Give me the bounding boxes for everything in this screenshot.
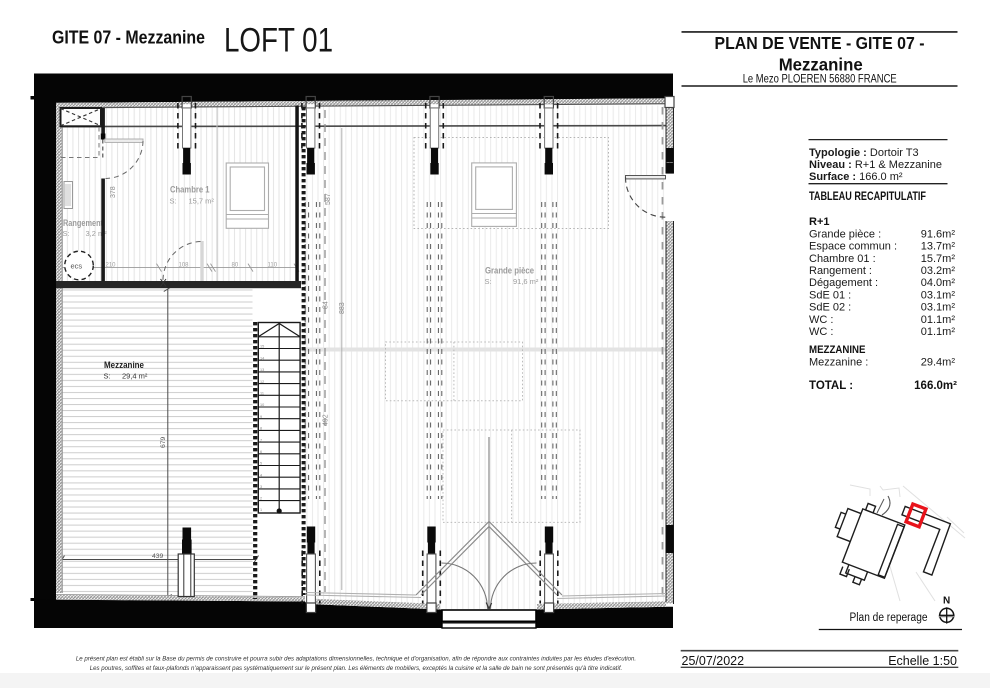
svg-text:ecs: ecs: [71, 262, 83, 271]
svg-text:S:: S:: [63, 229, 70, 238]
svg-text:15,7 m²: 15,7 m²: [189, 197, 215, 206]
svg-text:PLAN DE VENTE - GITE 07 -: PLAN DE VENTE - GITE 07 -: [715, 33, 925, 53]
svg-text:SdE 02 :: SdE 02 :: [809, 302, 851, 314]
svg-text:S:: S:: [104, 372, 111, 381]
svg-text:Les poutres, soffites et faux-: Les poutres, soffites et faux-plafonds n…: [90, 665, 622, 672]
svg-text:25/07/2022: 25/07/2022: [682, 654, 745, 668]
svg-text:4: 4: [260, 473, 262, 477]
svg-text:15.7m²: 15.7m²: [921, 253, 956, 265]
svg-text:Surface : 166.0 m²: Surface : 166.0 m²: [809, 171, 903, 183]
svg-text:TOTAL :: TOTAL :: [809, 380, 853, 392]
svg-text:5: 5: [260, 462, 262, 466]
svg-text:9: 9: [260, 415, 262, 419]
svg-text:13.7m²: 13.7m²: [921, 241, 956, 253]
svg-text:TABLEAU RECAPITULATIF: TABLEAU RECAPITULATIF: [809, 191, 926, 203]
svg-text:3: 3: [260, 485, 262, 489]
svg-text:03.1m²: 03.1m²: [921, 289, 956, 301]
svg-text:439: 439: [152, 553, 164, 560]
svg-text:Chambre 1: Chambre 1: [170, 185, 210, 195]
svg-text:378: 378: [110, 186, 117, 198]
svg-text:Rangement: Rangement: [63, 218, 103, 228]
svg-text:Espace commun :: Espace commun :: [809, 241, 897, 253]
svg-text:6: 6: [260, 450, 262, 454]
svg-text:29,4 m²: 29,4 m²: [122, 372, 148, 381]
svg-text:Chambre 01 :: Chambre 01 :: [809, 253, 876, 265]
svg-text:679: 679: [160, 436, 167, 448]
svg-text:8: 8: [260, 427, 262, 431]
svg-text:Le présent plan est établi sur: Le présent plan est établi sur la Base d…: [76, 656, 636, 663]
svg-text:10: 10: [260, 403, 264, 407]
svg-text:Grande pièce :: Grande pièce :: [809, 228, 881, 240]
svg-text:01.1m²: 01.1m²: [921, 326, 956, 338]
svg-text:1: 1: [260, 508, 262, 512]
svg-text:Mezzanine :: Mezzanine :: [809, 357, 868, 369]
svg-text:Niveau : R+1 & Mezzanine: Niveau : R+1 & Mezzanine: [809, 159, 942, 171]
svg-text:04.0m²: 04.0m²: [921, 277, 956, 289]
svg-text:MEZZANINE: MEZZANINE: [809, 344, 866, 356]
svg-text:Grande pièce: Grande pièce: [485, 266, 534, 276]
svg-text:15: 15: [260, 345, 264, 349]
svg-text:Mezzanine: Mezzanine: [104, 360, 144, 370]
svg-text:Rangement :: Rangement :: [809, 265, 872, 277]
svg-text:166.0m²: 166.0m²: [914, 380, 957, 392]
svg-text:2: 2: [260, 497, 262, 501]
svg-text:14: 14: [260, 356, 264, 360]
svg-text:7: 7: [260, 438, 262, 442]
svg-text:LOFT 01: LOFT 01: [224, 22, 333, 60]
svg-text:110: 110: [268, 263, 278, 269]
svg-text:Plan de reperage: Plan de reperage: [850, 612, 928, 624]
svg-text:01.1m²: 01.1m²: [921, 314, 956, 326]
svg-text:29.4m²: 29.4m²: [921, 357, 956, 369]
svg-text:91.6m²: 91.6m²: [921, 228, 956, 240]
svg-text:84: 84: [323, 301, 330, 309]
svg-text:210: 210: [106, 263, 117, 269]
svg-text:03.2m²: 03.2m²: [921, 265, 956, 277]
svg-text:80: 80: [232, 263, 239, 269]
svg-text:Typologie : Dortoir T3: Typologie : Dortoir T3: [809, 147, 919, 159]
svg-text:S:: S:: [485, 277, 492, 286]
svg-text:Dégagement :: Dégagement :: [809, 277, 878, 289]
svg-text:N: N: [943, 596, 950, 607]
svg-text:Le Mezo PLOEREN 56880 FRANCE: Le Mezo PLOEREN 56880 FRANCE: [743, 74, 897, 86]
svg-text:Mezzanine: Mezzanine: [779, 55, 863, 75]
svg-text:883: 883: [339, 302, 346, 314]
svg-text:492: 492: [323, 414, 330, 426]
svg-text:R+1: R+1: [809, 216, 830, 228]
svg-text:91,6 m²: 91,6 m²: [513, 277, 539, 286]
svg-text:WC :: WC :: [809, 326, 833, 338]
svg-text:WC :: WC :: [809, 314, 833, 326]
svg-text:11: 11: [260, 392, 264, 396]
svg-text:108: 108: [179, 263, 190, 269]
svg-text:13: 13: [260, 368, 264, 372]
svg-text:SdE 01 :: SdE 01 :: [809, 289, 851, 301]
svg-text:GITE 07 - Mezzanine: GITE 07 - Mezzanine: [52, 28, 205, 48]
svg-text:S:: S:: [170, 197, 177, 206]
svg-text:12: 12: [260, 380, 264, 384]
svg-text:Echelle 1:50: Echelle 1:50: [888, 654, 957, 668]
svg-text:03.1m²: 03.1m²: [921, 302, 956, 314]
svg-text:587: 587: [325, 193, 332, 205]
